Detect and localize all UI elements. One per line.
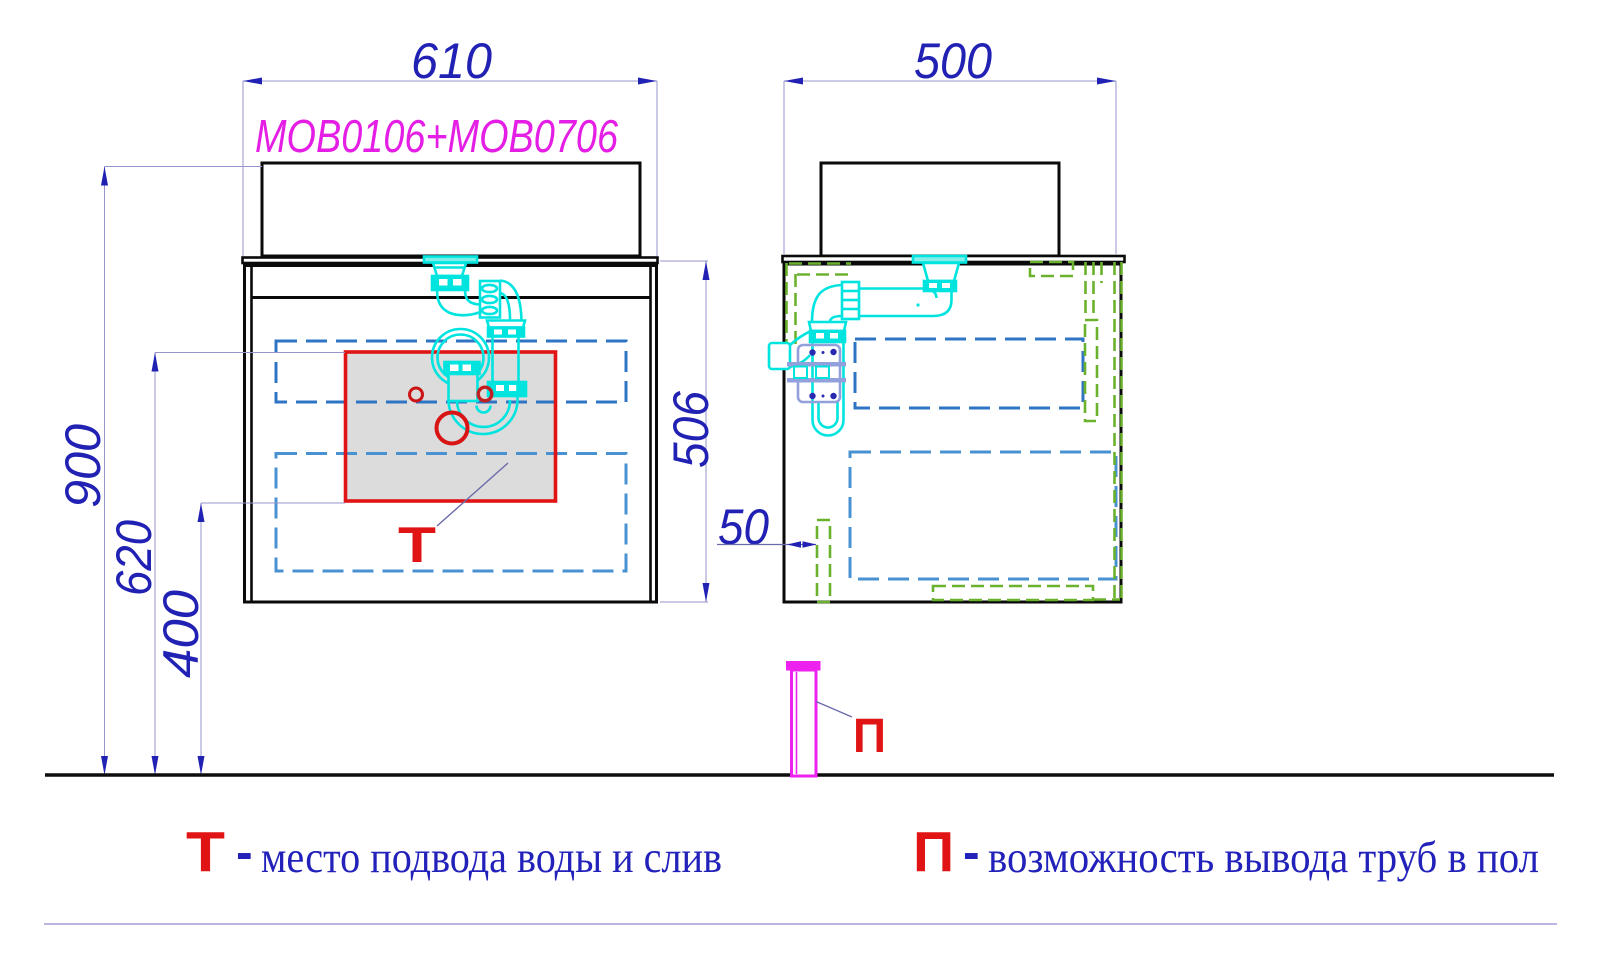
svg-text:T: T — [186, 820, 225, 884]
svg-text:900: 900 — [55, 424, 111, 508]
svg-text:место подвода воды и слив: место подвода воды и слив — [261, 833, 722, 882]
svg-text:MOB0106+MOB0706: MOB0106+MOB0706 — [255, 110, 618, 162]
svg-text:-: - — [236, 824, 253, 880]
svg-text:610: 610 — [411, 33, 492, 89]
svg-text:50: 50 — [718, 499, 769, 555]
svg-text:-: - — [963, 824, 980, 880]
svg-text:500: 500 — [914, 33, 992, 89]
svg-text:620: 620 — [106, 520, 162, 596]
svg-text:возможность вывода труб в пол: возможность вывода труб в пол — [988, 833, 1539, 882]
svg-text:Π: Π — [913, 820, 954, 884]
svg-text:T: T — [398, 517, 436, 573]
svg-text:506: 506 — [663, 391, 719, 468]
svg-text:Π: Π — [853, 710, 886, 763]
svg-text:400: 400 — [153, 590, 209, 678]
